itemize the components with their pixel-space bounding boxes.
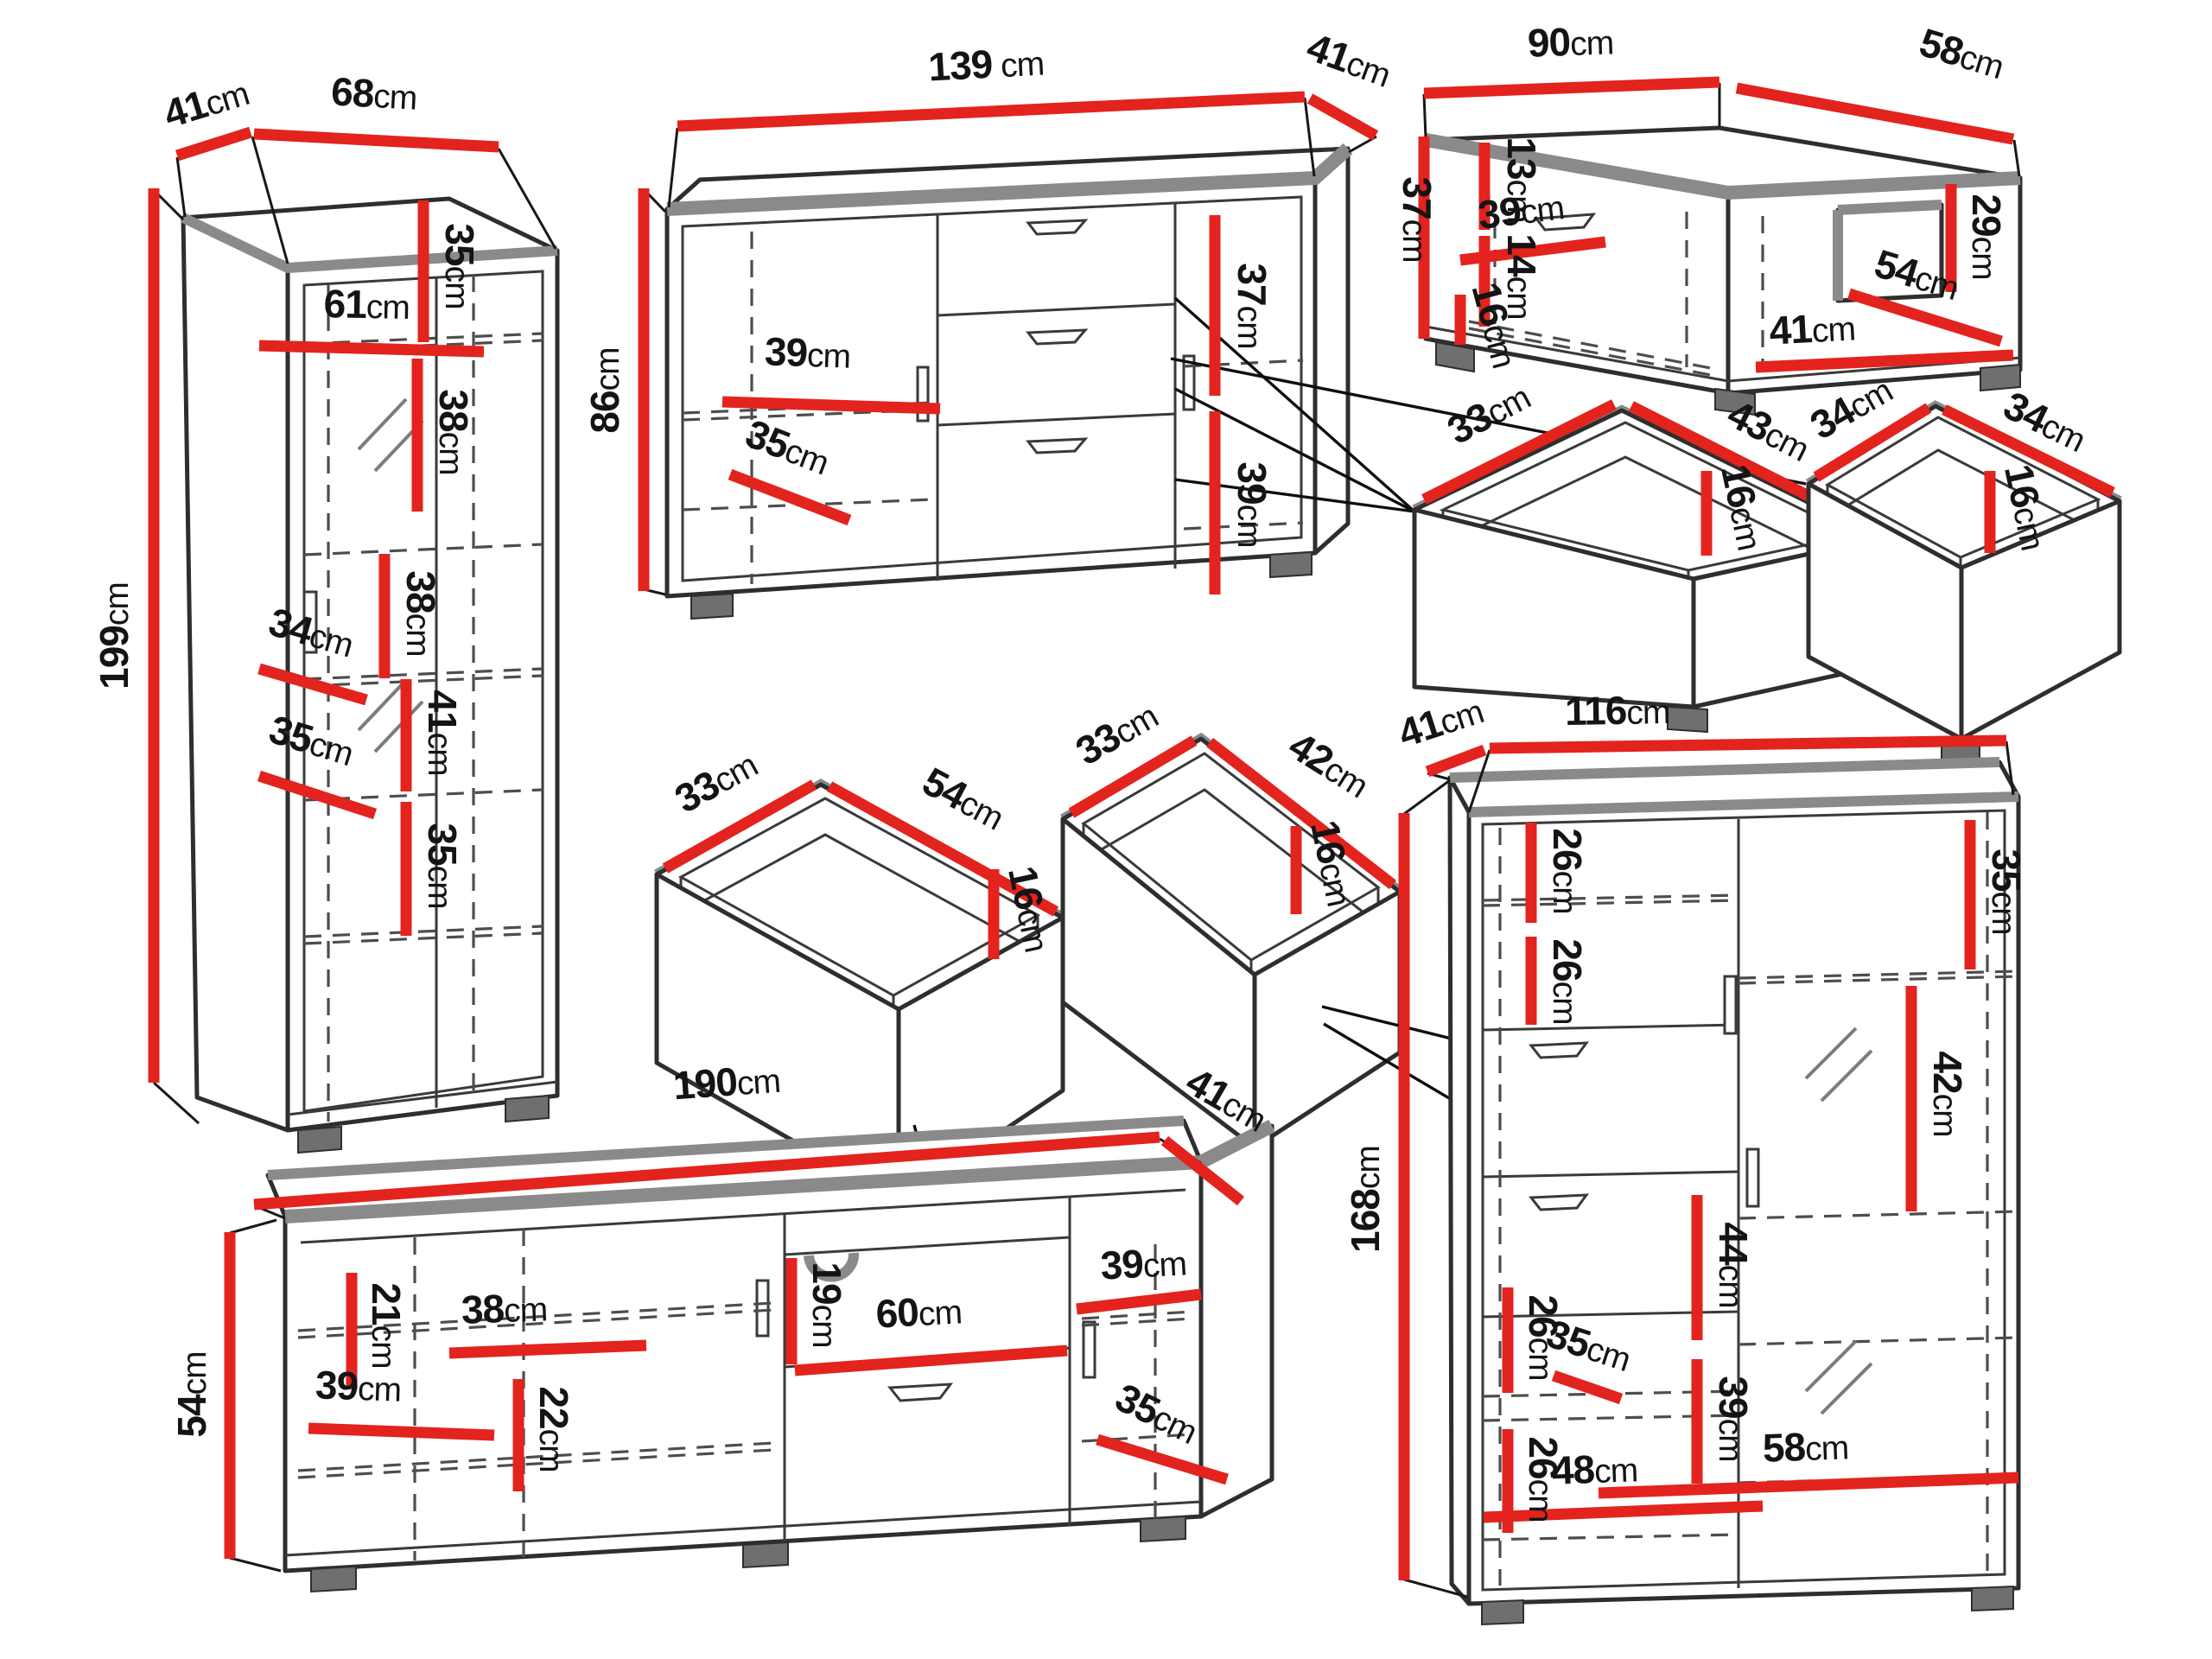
drawer-handle [1028,330,1085,344]
dim-sideboard-width: 139 cm [927,39,1045,90]
dim-tv-mid-height: 22cm [531,1386,576,1471]
dim-vitrine-width: 68cm [330,68,418,118]
furniture-dimension-diagram: 41cm 68cm 199cm 35cm 61cm 38cm 38cm 34cm… [0,0,2212,1659]
dim-vitrine-shelf-b: 38cm [431,389,476,474]
drawer-handle [890,1384,950,1401]
door-handle [1747,1149,1758,1206]
door-handle [757,1281,768,1336]
drawer-handle [1028,220,1085,234]
highboard-cabinet: 41cm 116cm 168cm 26cm 26cm 26cm 26cm 35c… [1343,687,2029,1624]
door-handle [1725,976,1736,1033]
dim-highboard-left-1: 26cm [1545,828,1590,913]
dim-sideboard-right-lower: 39cm [1230,461,1274,547]
dim-highboard-depth: 41cm [1393,687,1488,756]
dim-drawer-d-front: 42cm [1281,722,1378,806]
coffee-table: 90cm 58cm 37cm 13cm 14cm 39cm 16cm 29cm … [1395,17,2020,415]
dim-highboard-width: 116cm [1565,687,1670,734]
dim-highboard-height: 168cm [1343,1146,1388,1253]
drawer-handle [1531,1043,1586,1058]
sideboard-outline [667,149,1348,619]
dim-vitrine-shelf-d: 41cm [420,690,465,775]
drawer-34x34: 34cm 34cm 16cm [1802,366,2120,761]
dim-sideboard-right-upper: 37cm [1230,263,1274,348]
dim-coffee-niche-height: 29cm [1964,194,2009,279]
dim-sideboard-depth: 41cm [1301,24,1397,96]
dim-vitrine-depth: 41cm [158,68,253,137]
dim-tv-height: 54cm [169,1351,214,1437]
dim-drawer-c-side: 33cm [667,741,764,822]
door-handle [1084,1322,1095,1377]
dim-drawer-c-front: 54cm [916,759,1013,838]
dim-tv-width: 190cm [671,1056,781,1109]
dim-highboard-right-top: 35cm [1984,849,2029,934]
dim-vitrine-shelf-e: 35cm [420,823,465,908]
dim-drawer-a-side: 33cm [1440,373,1537,453]
dim-vitrine-top-shelf: 35cm [437,223,482,308]
dim-tv-left-height: 21cm [364,1282,409,1368]
vitrine-cabinet: 41cm 68cm 199cm 35cm 61cm 38cm 38cm 34cm… [92,68,557,1153]
dim-coffee-depth: 58cm [1915,19,2010,87]
dim-sideboard-height: 86cm [582,347,627,433]
drawer-handle [1531,1195,1586,1210]
dim-highboard-right-4: 39cm [1711,1376,1756,1461]
dim-coffee-width: 90cm [1527,17,1614,65]
dim-vitrine-height: 199cm [92,582,137,690]
dim-highboard-left-2: 26cm [1545,938,1590,1024]
drawer-handle [1028,439,1085,453]
dim-coffee-height: 37cm [1395,176,1440,262]
dim-highboard-right-3: 44cm [1711,1222,1756,1307]
dim-tv-niche-height: 19cm [804,1262,849,1347]
dim-vitrine-shelf-c: 38cm [398,570,443,656]
dim-highboard-right-2: 42cm [1925,1051,1970,1136]
